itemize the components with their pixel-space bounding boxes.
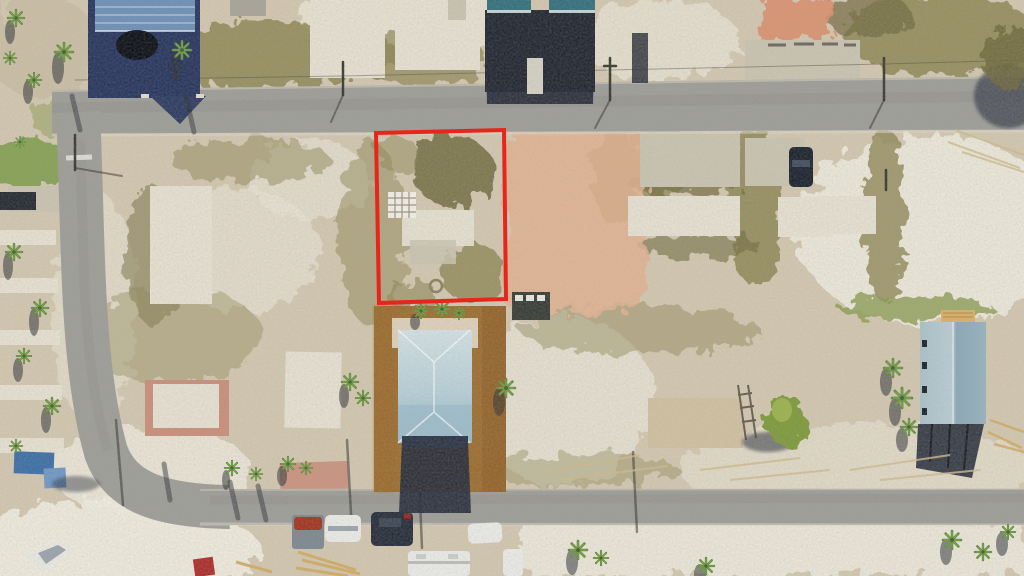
photo-grain: [0, 0, 1024, 576]
aerial-photo: [0, 0, 1024, 576]
aerial-photo-canvas: [0, 0, 1024, 576]
